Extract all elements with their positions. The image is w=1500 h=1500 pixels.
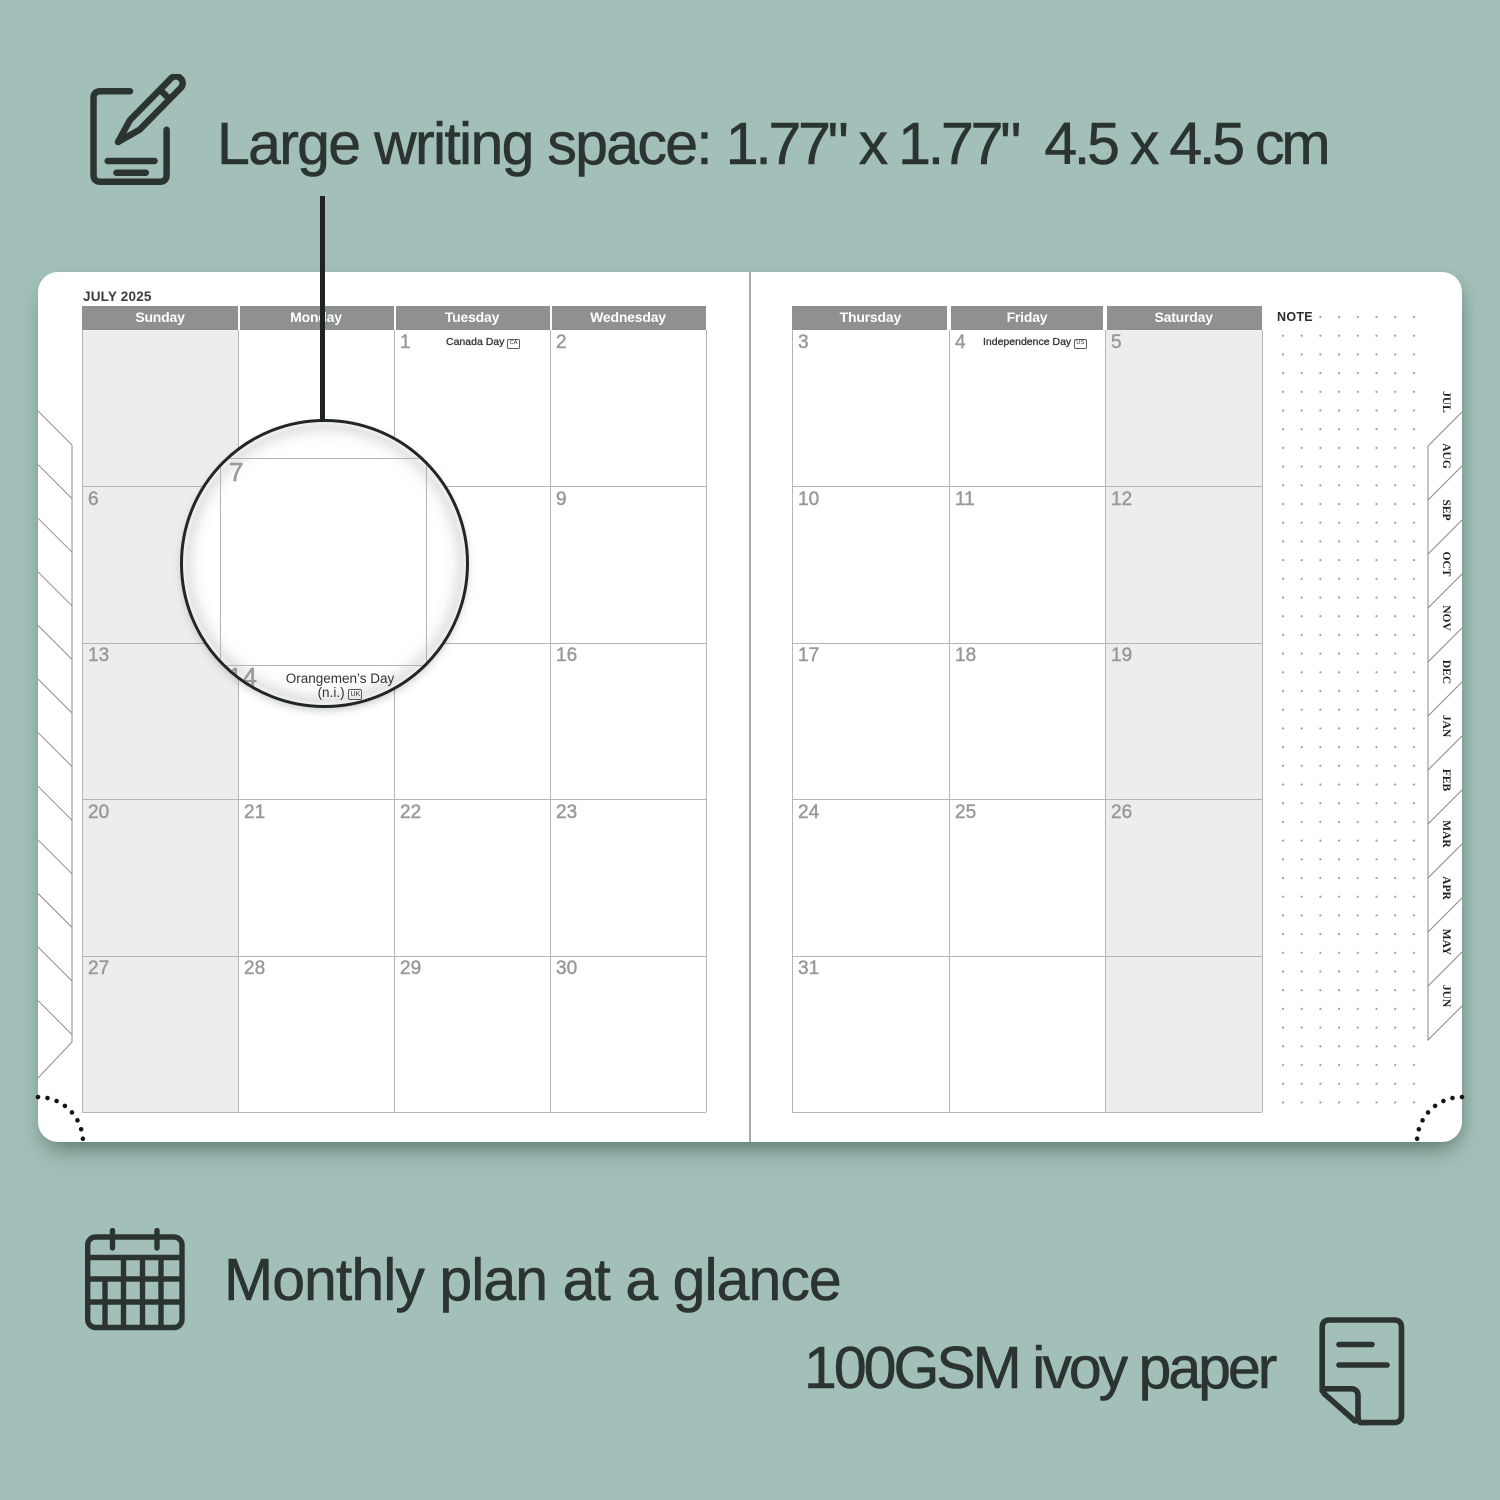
svg-text:AUG: AUG (1440, 443, 1452, 469)
svg-text:OCT: OCT (1440, 552, 1452, 577)
svg-text:JUL: JUL (1440, 391, 1452, 413)
svg-text:SEP: SEP (1440, 499, 1452, 520)
svg-text:JAN: JAN (1440, 715, 1452, 738)
svg-text:DEC: DEC (1440, 660, 1452, 684)
svg-text:MAY: MAY (1440, 929, 1452, 956)
svg-text:MAR: MAR (1440, 820, 1452, 848)
svg-text:JUN: JUN (1440, 985, 1452, 1008)
svg-text:FEB: FEB (1440, 769, 1452, 792)
svg-text:NOV: NOV (1440, 605, 1452, 631)
svg-text:APR: APR (1440, 876, 1452, 900)
